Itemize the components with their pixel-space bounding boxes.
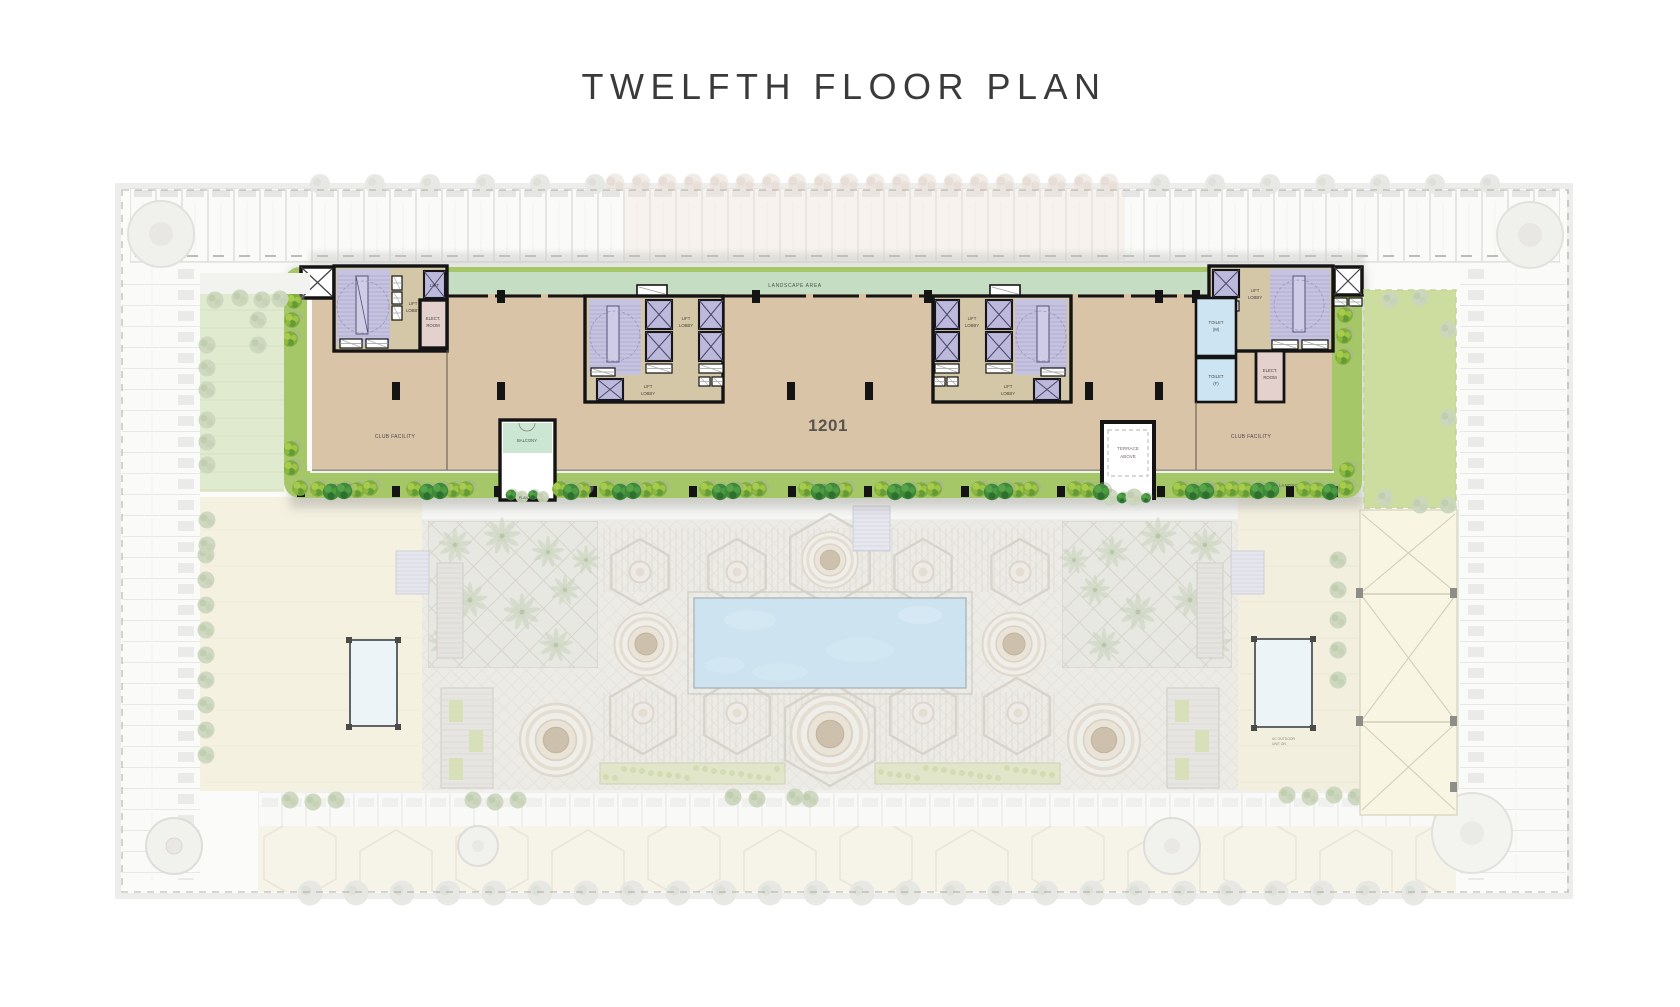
svg-text:TERRACE: TERRACE xyxy=(1117,446,1139,451)
svg-text:LIFT: LIFT xyxy=(430,283,440,288)
svg-text:LOBBY: LOBBY xyxy=(1248,295,1262,300)
svg-text:TOILET: TOILET xyxy=(1209,320,1224,325)
svg-text:(F): (F) xyxy=(1213,381,1219,386)
svg-text:ABOVE: ABOVE xyxy=(1120,454,1136,459)
svg-text:LOBBY: LOBBY xyxy=(965,323,979,328)
svg-text:LOBBY: LOBBY xyxy=(679,323,693,328)
svg-text:LIFT: LIFT xyxy=(1251,288,1260,293)
svg-text:LIFT: LIFT xyxy=(1004,384,1013,389)
svg-text:LIFT: LIFT xyxy=(644,384,653,389)
svg-text:UNIT ON: UNIT ON xyxy=(1272,742,1286,746)
svg-text:ROOM: ROOM xyxy=(1263,375,1277,380)
svg-text:(M): (M) xyxy=(1213,327,1220,332)
svg-text:CLUB FACILITY: CLUB FACILITY xyxy=(375,434,416,440)
svg-text:BALCONY: BALCONY xyxy=(517,438,537,443)
svg-text:ELECT.: ELECT. xyxy=(1263,368,1278,373)
svg-text:LIFT: LIFT xyxy=(409,301,418,306)
svg-text:LIFT: LIFT xyxy=(682,316,691,321)
svg-text:TOILET: TOILET xyxy=(1209,374,1224,379)
svg-text:TWELFTH FLOOR PLAN: TWELFTH FLOOR PLAN xyxy=(581,66,1106,107)
svg-text:PLANTER: PLANTER xyxy=(519,496,536,500)
svg-text:1201: 1201 xyxy=(808,416,848,435)
svg-text:LOBBY: LOBBY xyxy=(1001,391,1015,396)
svg-text:CLUB FACILITY: CLUB FACILITY xyxy=(1231,434,1272,440)
svg-text:ROOM: ROOM xyxy=(426,323,440,328)
svg-text:LANDSCAPE AREA: LANDSCAPE AREA xyxy=(768,283,821,289)
svg-text:LIFT: LIFT xyxy=(968,316,977,321)
svg-text:ELECT.: ELECT. xyxy=(426,316,441,321)
svg-text:LOBBY: LOBBY xyxy=(641,391,655,396)
svg-text:AC OUTDOOR: AC OUTDOOR xyxy=(1272,737,1296,741)
svg-text:LOBBY: LOBBY xyxy=(406,308,420,313)
